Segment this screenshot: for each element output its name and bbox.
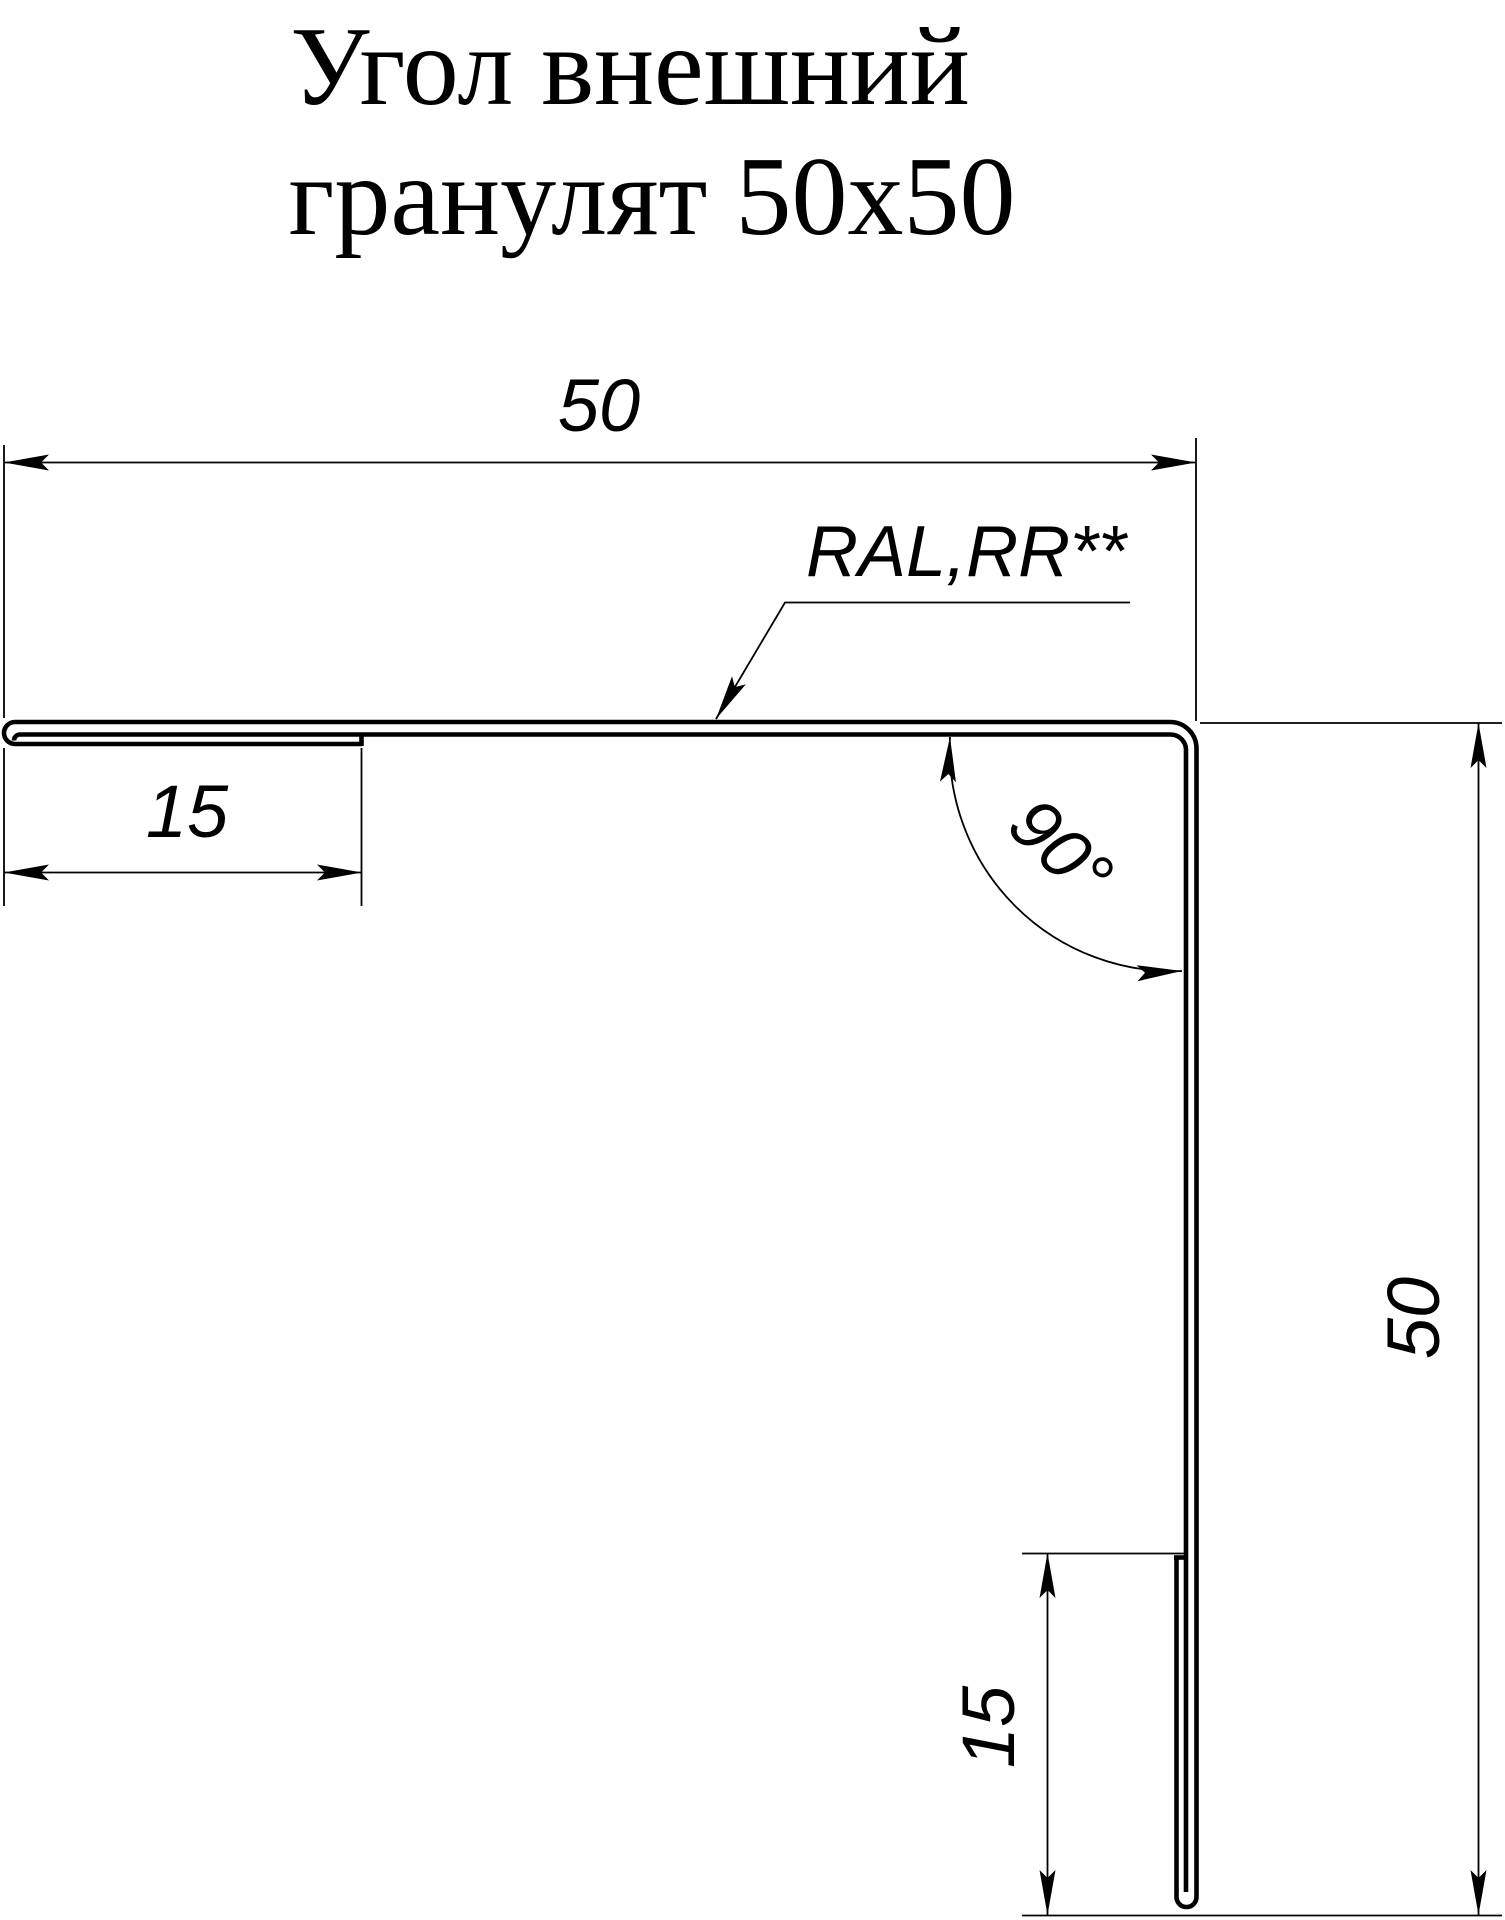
technical-drawing-canvas: Угол внешний гранулят 50х50 50 15 [0,0,1505,1920]
dimension-value-right-height: 50 [1372,1277,1455,1359]
drawing-background [0,0,1505,1920]
dimension-value-top-width: 50 [558,364,640,447]
coating-label: RAL,RR** [806,512,1128,592]
dimension-value-bottom-hem: 15 [947,1685,1030,1768]
title-line-1: Угол внешний [290,5,970,129]
dimension-value-left-hem: 15 [146,770,229,853]
title-line-2: гранулят 50х50 [288,135,1015,259]
drawing-sheet: Угол внешний гранулят 50х50 50 15 [0,0,1505,1920]
